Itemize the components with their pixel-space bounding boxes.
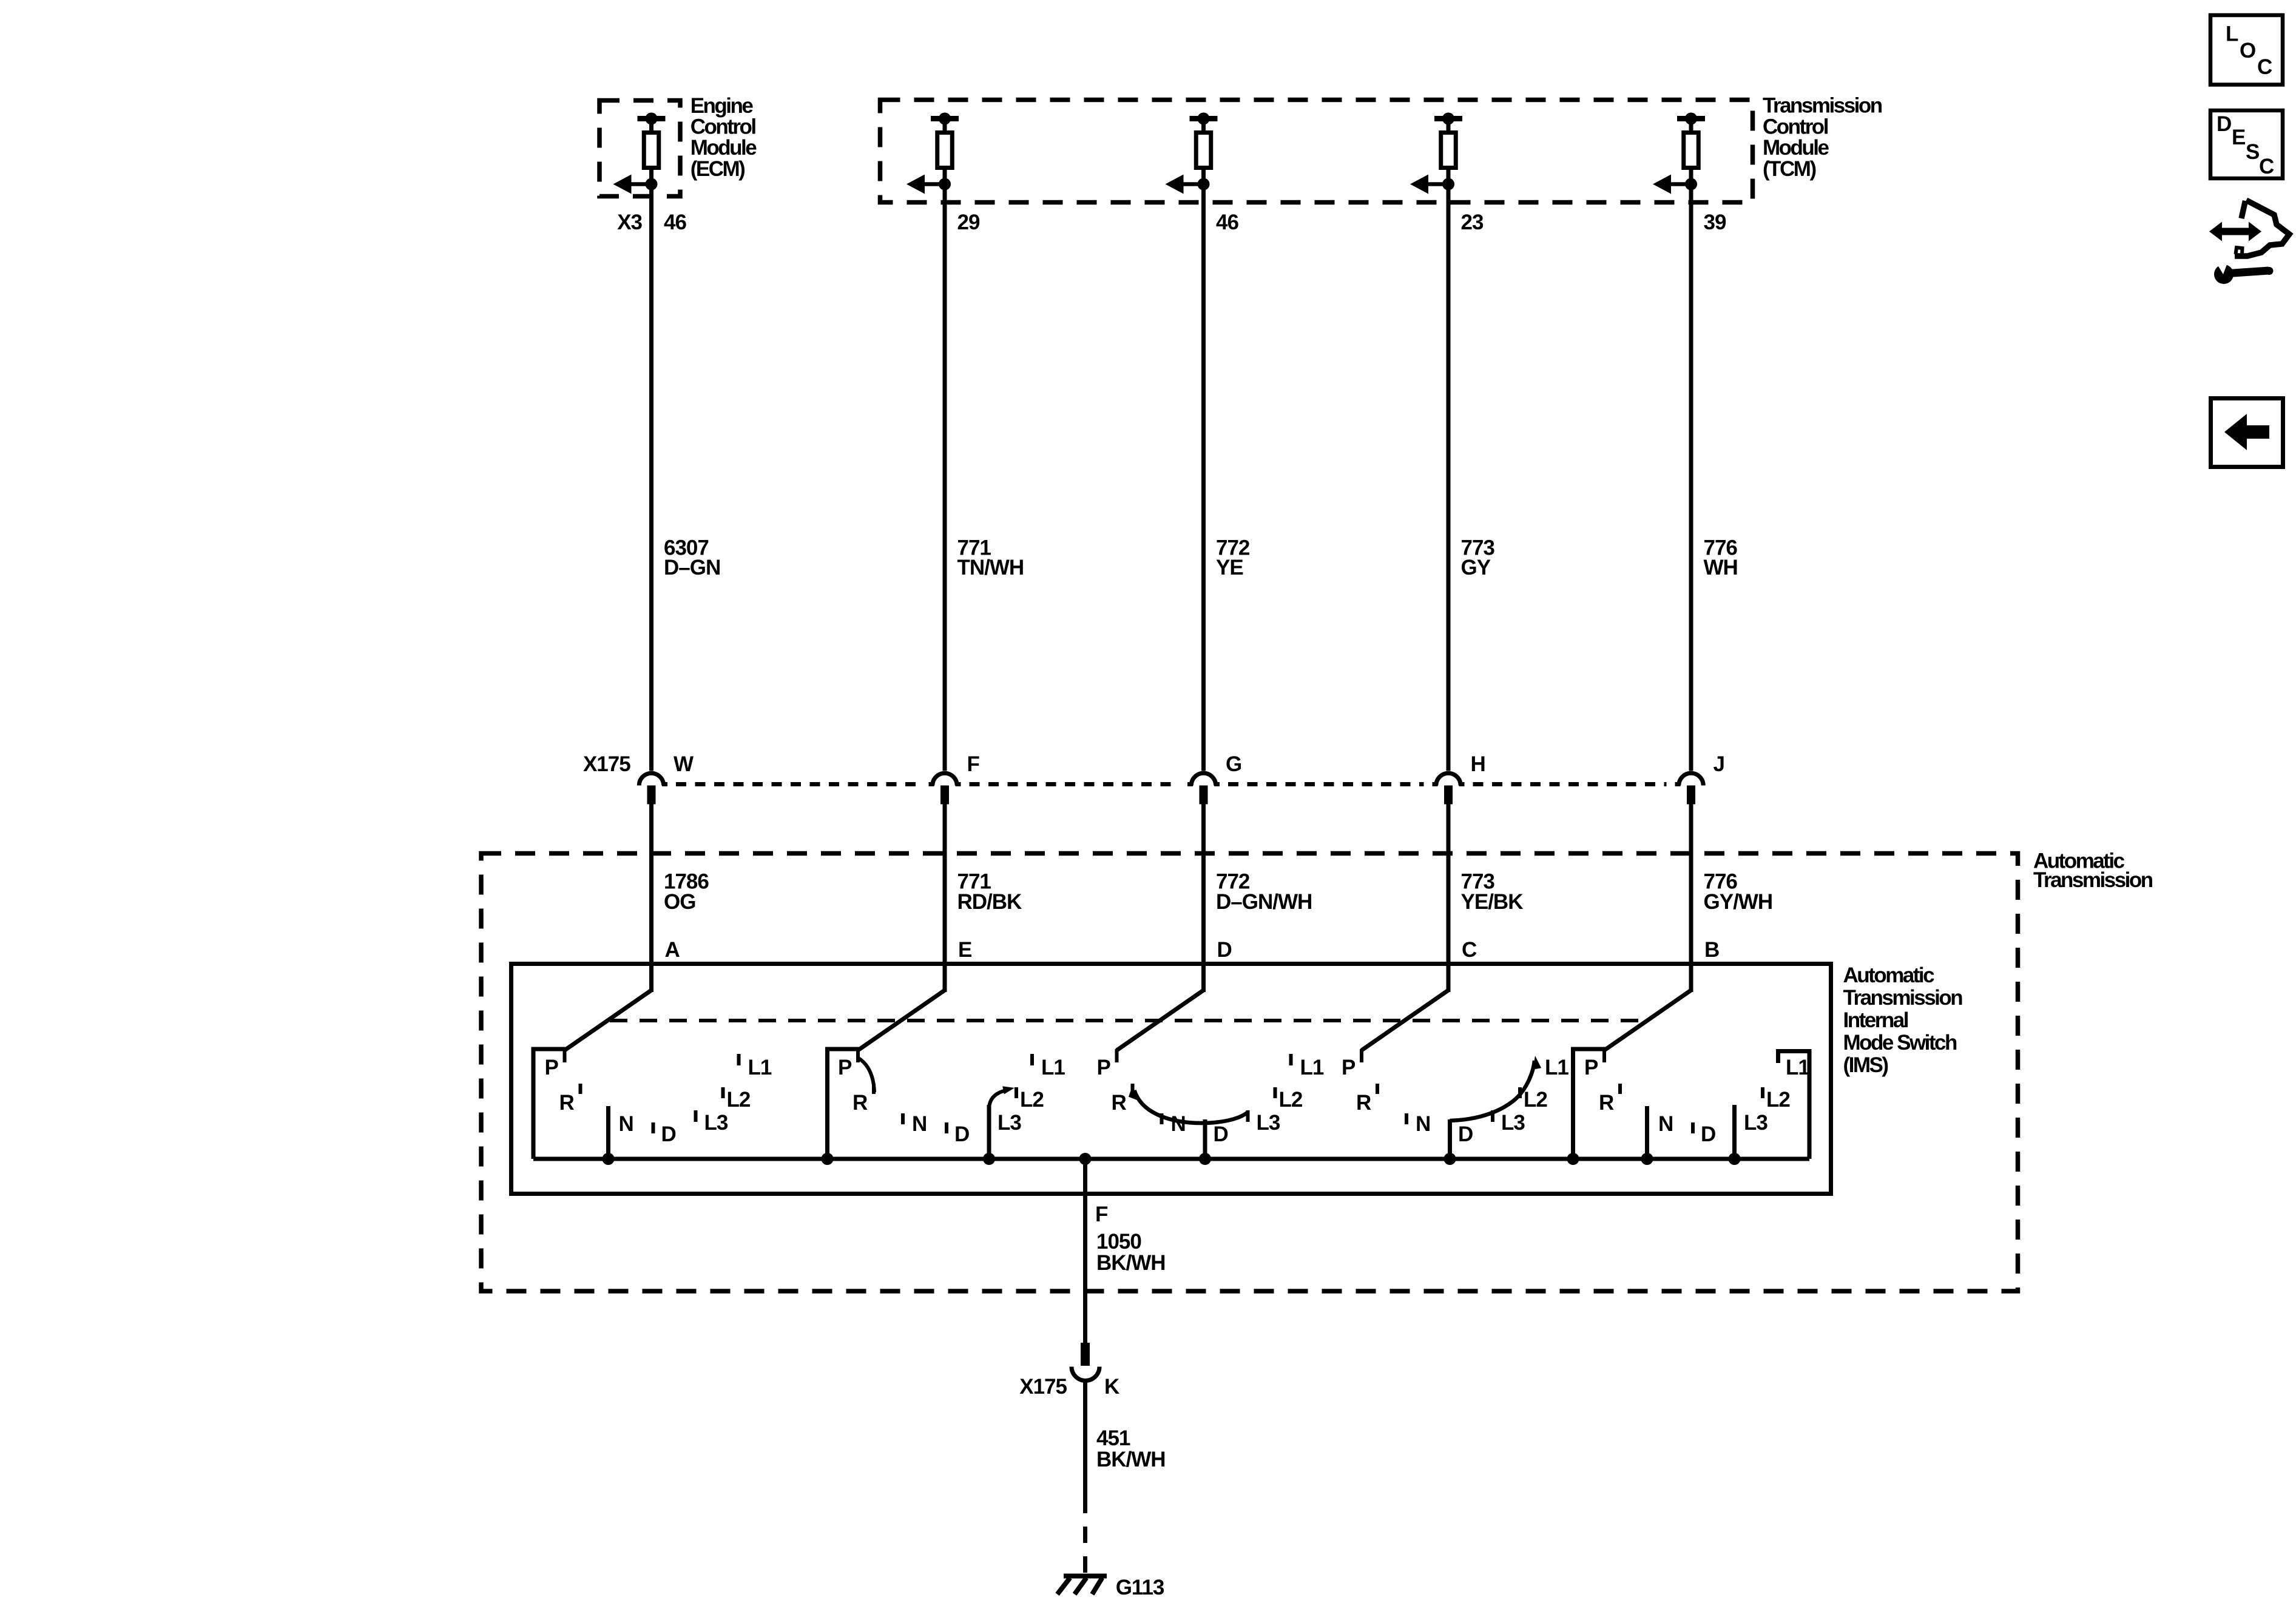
svg-text:773YE/BK: 773YE/BK	[1461, 870, 1524, 914]
svg-text:L1: L1	[1041, 1056, 1065, 1079]
svg-text:L3: L3	[1501, 1111, 1525, 1135]
svg-text:J: J	[1714, 752, 1724, 776]
svg-text:P: P	[1097, 1056, 1111, 1079]
svg-text:L2: L2	[1279, 1088, 1303, 1112]
svg-text:39: 39	[1704, 211, 1726, 234]
svg-text:L1: L1	[1545, 1056, 1568, 1079]
svg-text:B: B	[1704, 938, 1719, 962]
svg-text:W: W	[674, 752, 694, 776]
svg-text:O: O	[2240, 39, 2256, 62]
svg-text:R: R	[1356, 1091, 1371, 1115]
svg-text:N: N	[1658, 1112, 1673, 1136]
svg-text:L2: L2	[1766, 1088, 1790, 1112]
svg-text:EngineControlModule(ECM): EngineControlModule(ECM)	[690, 94, 757, 181]
svg-text:771TN/WH: 771TN/WH	[957, 536, 1024, 579]
svg-text:D: D	[2217, 112, 2232, 136]
svg-text:D: D	[954, 1122, 969, 1146]
svg-text:C: C	[1462, 938, 1477, 962]
svg-text:G: G	[1226, 752, 1241, 776]
svg-text:X175: X175	[583, 752, 630, 776]
svg-text:D: D	[1214, 1122, 1228, 1146]
svg-text:P: P	[545, 1056, 559, 1079]
svg-text:772YE: 772YE	[1216, 536, 1250, 579]
svg-text:L3: L3	[998, 1111, 1021, 1135]
svg-text:AutomaticTransmission: AutomaticTransmission	[2033, 849, 2153, 893]
svg-text:776WH: 776WH	[1704, 536, 1738, 579]
svg-text:L3: L3	[1744, 1111, 1768, 1135]
svg-text:776GY/WH: 776GY/WH	[1704, 870, 1773, 914]
svg-text:S: S	[2246, 140, 2260, 164]
svg-text:R: R	[1112, 1091, 1127, 1115]
svg-text:L1: L1	[748, 1056, 772, 1079]
svg-text:A: A	[665, 938, 680, 962]
svg-text:23: 23	[1461, 211, 1484, 234]
svg-text:L2: L2	[1020, 1088, 1044, 1112]
svg-text:P: P	[1342, 1056, 1356, 1079]
svg-text:P: P	[838, 1056, 852, 1079]
svg-text:772D–GN/WH: 772D–GN/WH	[1216, 870, 1312, 914]
svg-text:L1: L1	[1300, 1056, 1324, 1079]
svg-text:L2: L2	[1524, 1088, 1547, 1112]
svg-text:L3: L3	[1257, 1111, 1280, 1135]
svg-text:46: 46	[664, 211, 686, 234]
svg-text:H: H	[1471, 752, 1485, 776]
svg-text:C: C	[2257, 55, 2272, 79]
svg-text:F: F	[967, 752, 980, 776]
svg-text:N: N	[1171, 1112, 1186, 1136]
svg-text:N: N	[1416, 1112, 1430, 1136]
svg-text:771RD/BK: 771RD/BK	[957, 870, 1022, 914]
svg-text:R: R	[1599, 1091, 1614, 1115]
svg-text:L1: L1	[1786, 1056, 1809, 1079]
svg-text:773GY: 773GY	[1461, 536, 1495, 579]
svg-text:6307D–GN: 6307D–GN	[664, 536, 720, 579]
svg-text:N: N	[912, 1112, 927, 1136]
svg-text:R: R	[559, 1091, 575, 1115]
svg-text:P: P	[1584, 1056, 1598, 1079]
svg-text:G113: G113	[1116, 1576, 1164, 1599]
svg-text:X175: X175	[1019, 1375, 1067, 1399]
svg-text:K: K	[1104, 1375, 1119, 1399]
svg-text:E: E	[958, 938, 971, 962]
svg-text:29: 29	[957, 211, 980, 234]
svg-text:AutomaticTransmissionInternalM: AutomaticTransmissionInternalMode Switch…	[1843, 964, 1963, 1077]
svg-text:L3: L3	[704, 1111, 728, 1135]
svg-text:R: R	[853, 1091, 868, 1115]
svg-text:F: F	[1095, 1203, 1108, 1226]
svg-text:TransmissionControlModule(TCM): TransmissionControlModule(TCM)	[1763, 94, 1882, 181]
svg-text:451BK/WH: 451BK/WH	[1096, 1426, 1166, 1471]
svg-text:D: D	[1701, 1122, 1715, 1146]
svg-text:E: E	[2232, 126, 2246, 149]
svg-text:X3: X3	[617, 211, 642, 234]
svg-text:46: 46	[1216, 211, 1238, 234]
svg-text:1050BK/WH: 1050BK/WH	[1096, 1230, 1166, 1275]
svg-text:D: D	[1458, 1122, 1473, 1146]
svg-text:N: N	[619, 1112, 633, 1136]
svg-text:D: D	[1217, 938, 1232, 962]
svg-text:C: C	[2259, 155, 2274, 178]
svg-text:L2: L2	[727, 1088, 751, 1112]
svg-text:D: D	[661, 1122, 676, 1146]
svg-text:L: L	[2226, 22, 2238, 46]
svg-text:1786OG: 1786OG	[664, 870, 709, 914]
